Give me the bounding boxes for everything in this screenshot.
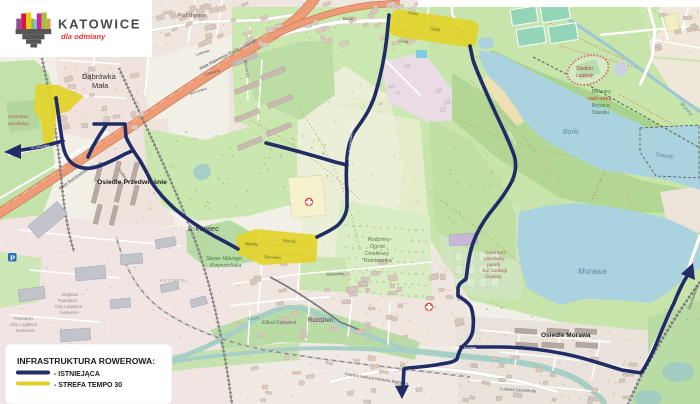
svg-text:Skwer Hilarego: Skwer Hilarego	[206, 256, 242, 262]
svg-text:Bojtswa: Bojtswa	[62, 292, 79, 297]
svg-text:Borki: Borki	[343, 16, 353, 21]
svg-text:Elbud Katowice: Elbud Katowice	[262, 320, 297, 326]
svg-text:Katowice: Katowice	[16, 328, 35, 333]
svg-text:Stawiki: Stawiki	[592, 110, 609, 116]
svg-text:Brynica: Brynica	[592, 103, 610, 109]
svg-text:Ogród: Ogród	[370, 244, 385, 250]
svg-text:Cmentarz: Cmentarz	[485, 250, 506, 256]
svg-text:parafii: parafii	[487, 262, 500, 268]
svg-text:Rodzinny: Rodzinny	[368, 237, 390, 243]
svg-text:City Logistics: City Logistics	[55, 304, 83, 309]
svg-text:Morawa: Morawa	[578, 267, 607, 276]
svg-text:- ISTNIEJĄCA: - ISTNIEJĄCA	[54, 371, 100, 378]
svg-text:Roździeń: Roździeń	[308, 318, 333, 324]
svg-text:Mała: Mała	[92, 81, 109, 90]
svg-text:Osiedle Morawa: Osiedle Morawa	[541, 332, 591, 339]
svg-text:parafialny: parafialny	[484, 256, 505, 262]
svg-text:Wandy: Wandy	[283, 238, 297, 244]
svg-text:INFRASTRUKTURA ROWEROWA:: INFRASTRUKTURA ROWEROWA:	[17, 356, 155, 366]
svg-text:parafialny: parafialny	[7, 121, 29, 127]
svg-text:Borki: Borki	[563, 129, 579, 136]
svg-text:City Logistics: City Logistics	[10, 322, 38, 327]
svg-text:dla odmiany: dla odmiany	[61, 32, 106, 41]
svg-text:Panattoni: Panattoni	[14, 316, 33, 321]
svg-text:Morawa: Morawa	[464, 346, 476, 350]
svg-text:KATOWICE: KATOWICE	[58, 17, 141, 32]
svg-text:Osiedle Przedwiośnie: Osiedle Przedwiośnie	[97, 179, 167, 186]
svg-text:Cmentarz: Cmentarz	[8, 114, 29, 120]
svg-text:Krzysztofiaka: Krzysztofiaka	[210, 263, 242, 269]
svg-text:nad rzeką: nad rzeką	[588, 96, 611, 102]
svg-text:Pod Młynem: Pod Młynem	[178, 13, 206, 19]
svg-text:Działkowy: Działkowy	[365, 251, 389, 257]
svg-text:Katowice: Katowice	[60, 310, 79, 315]
svg-text:Bulwary: Bulwary	[592, 89, 611, 95]
svg-text:Panattoni: Panattoni	[58, 298, 77, 303]
svg-text:Ludowy: Ludowy	[576, 73, 594, 79]
svg-text:"Roździanka": "Roździanka"	[362, 258, 394, 264]
svg-text:KATFRPOL: KATFRPOL	[160, 278, 188, 283]
svg-text:P: P	[10, 255, 15, 262]
svg-text:Wandy: Wandy	[245, 241, 259, 247]
svg-text:Dąbrówka: Dąbrówka	[82, 72, 117, 81]
svg-text:Stadion: Stadion	[576, 66, 593, 72]
svg-text:- STREFA TEMPO 30: - STREFA TEMPO 30	[54, 382, 122, 389]
